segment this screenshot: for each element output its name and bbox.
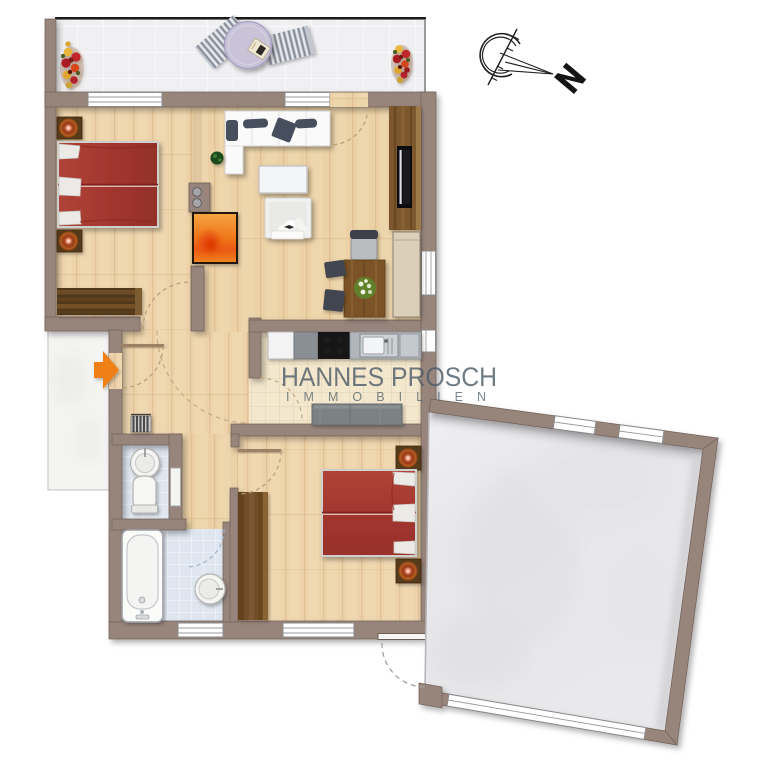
svg-text:HANNES PROSCH: HANNES PROSCH xyxy=(281,362,497,392)
